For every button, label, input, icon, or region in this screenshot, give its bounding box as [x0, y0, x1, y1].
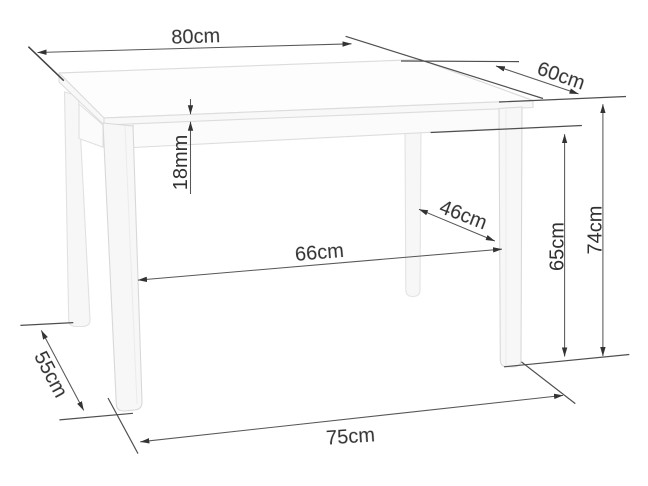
svg-text:60cm: 60cm: [534, 58, 587, 95]
svg-text:46cm: 46cm: [436, 196, 490, 234]
svg-text:18mm: 18mm: [170, 135, 192, 191]
svg-text:66cm: 66cm: [294, 240, 345, 266]
svg-text:80cm: 80cm: [171, 25, 221, 49]
svg-text:65cm: 65cm: [547, 222, 569, 271]
svg-text:74cm: 74cm: [585, 206, 607, 255]
svg-text:75cm: 75cm: [325, 424, 375, 449]
